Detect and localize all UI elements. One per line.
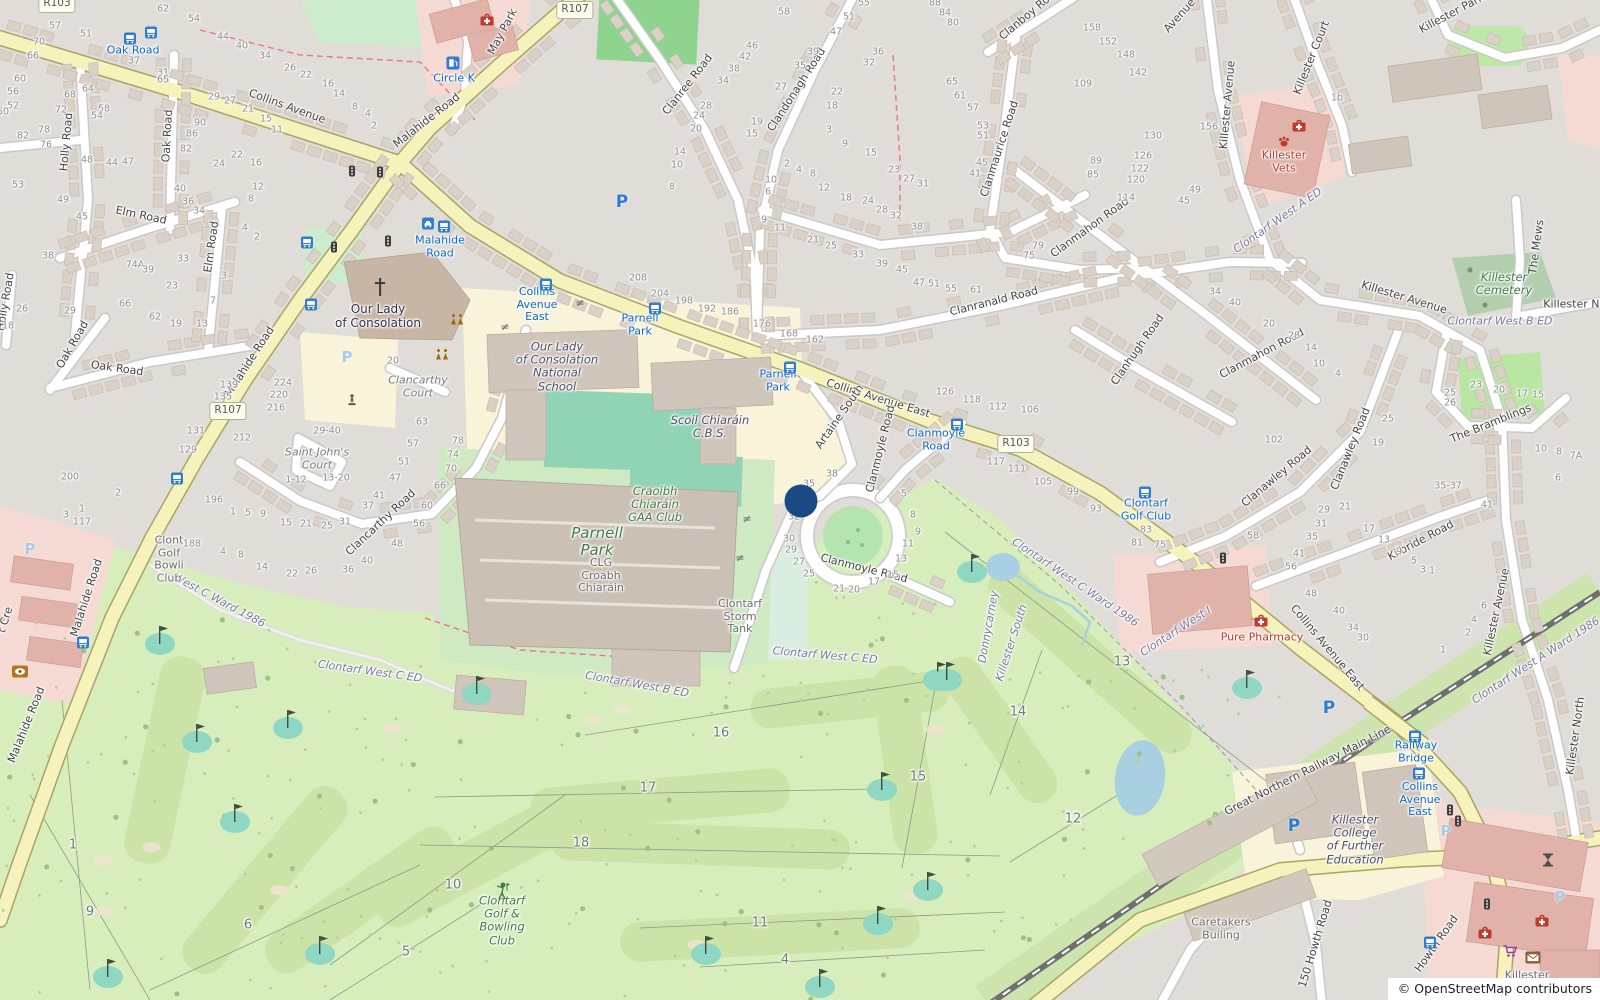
- house-number: 9: [260, 510, 266, 521]
- house-number: 7: [210, 297, 216, 308]
- house-number: 120: [1127, 176, 1145, 187]
- street-label: May Park: [486, 7, 521, 57]
- house-number: 65: [157, 76, 169, 87]
- house-number: 198: [675, 297, 693, 308]
- house-number: 18: [826, 102, 838, 113]
- house-number: 11: [271, 126, 283, 137]
- house-number: 186: [721, 308, 739, 319]
- house-number: 41: [1481, 501, 1493, 512]
- house-number: 10: [671, 161, 683, 172]
- street-label: Collins Avenue East: [1287, 603, 1366, 694]
- house-number: 204: [651, 290, 669, 301]
- house-number: 75: [1154, 541, 1166, 552]
- house-number: 109: [1074, 80, 1092, 91]
- house-number: 55: [858, 0, 870, 9]
- house-number: 5: [901, 490, 907, 501]
- golf-green-icon: [460, 674, 494, 710]
- house-number: 12: [252, 183, 264, 194]
- house-number: 21: [300, 520, 312, 531]
- poi-label: CLG Croabh Chiaráin: [578, 557, 624, 595]
- house-number: 4: [242, 224, 248, 235]
- golf-green-icon: [303, 934, 337, 970]
- house-number: 52: [7, 102, 19, 113]
- house-number: 40: [236, 42, 248, 53]
- street-label: Clanmahon Road: [1218, 326, 1307, 381]
- house-number: 30: [1357, 634, 1369, 645]
- house-number: 47: [389, 474, 401, 485]
- street-label: Malahide Road: [68, 558, 105, 639]
- house-number: 51: [977, 132, 989, 143]
- house-number: 31: [339, 518, 351, 529]
- house-number: 48: [1305, 590, 1317, 601]
- house-number: 25: [1444, 389, 1456, 400]
- house-number: 2: [115, 489, 121, 500]
- house-number: 31: [157, 69, 169, 80]
- house-number: 27: [224, 97, 236, 108]
- signal-icon: [1455, 812, 1461, 831]
- house-number: 34: [193, 207, 205, 218]
- house-number: 28: [1288, 332, 1300, 343]
- house-number: 29: [1318, 506, 1330, 517]
- house-number: 27: [775, 83, 787, 94]
- poi-label: Parnell Park: [571, 525, 622, 560]
- street-label: Artaine South: [813, 383, 867, 452]
- admin-boundary-label: Clontarf West B ED: [1447, 316, 1552, 329]
- location-marker[interactable]: [785, 485, 818, 518]
- street-label: Clanmoyle Road: [864, 404, 898, 494]
- bus-icon: [784, 359, 796, 378]
- house-number: 29: [785, 546, 797, 557]
- house-number: 41: [1293, 550, 1305, 561]
- house-number: 78: [38, 126, 50, 137]
- poi-label: Scoil Chiaráin C.B.S.: [671, 414, 750, 440]
- house-number: 66: [434, 482, 446, 493]
- house-number: 23: [166, 282, 178, 293]
- house-number: 40: [174, 185, 186, 196]
- street-label: Clanmahon Road: [1048, 195, 1131, 260]
- playground-icon: [435, 346, 450, 365]
- house-number: 29-40: [313, 427, 341, 438]
- house-number: 54: [188, 15, 200, 26]
- house-number: 4: [1471, 616, 1477, 627]
- house-number: 51: [80, 30, 92, 41]
- house-number: 56: [1285, 563, 1297, 574]
- house-number: 44: [106, 159, 118, 170]
- house-number: 1-12: [285, 476, 307, 487]
- house-number: 22: [831, 88, 843, 99]
- parking-icon: P: [1288, 816, 1300, 836]
- street-label: Clancarthy Road: [344, 487, 419, 558]
- house-number: 41: [373, 492, 385, 503]
- house-number: 216: [267, 404, 285, 415]
- transit-stop-label: Circle K: [433, 73, 475, 86]
- street-label: Howth Road: [1413, 913, 1461, 975]
- house-number: 13: [196, 320, 208, 331]
- house-number: 5: [245, 509, 251, 520]
- map-canvas[interactable]: Collins AvenueMalahide RoadMay ParkMalah…: [0, 0, 1600, 1000]
- house-number: 49: [57, 196, 69, 207]
- golf-green-icon: [861, 904, 895, 940]
- house-number: 28: [876, 206, 888, 217]
- house-number: 11: [902, 540, 914, 551]
- signal-icon: [377, 163, 383, 182]
- street-label: Collins Avenue East: [825, 377, 932, 421]
- golf-green-icon: [1230, 668, 1264, 704]
- golf-hole-number: 9: [86, 906, 94, 921]
- house-number: 2: [784, 160, 790, 171]
- house-number: 26: [284, 64, 296, 75]
- house-number: 38: [911, 223, 923, 234]
- attribution[interactable]: © OpenStreetMap contributors: [1388, 978, 1600, 1000]
- pharmacy-icon: [1255, 612, 1268, 631]
- golf-green-icon: [271, 708, 305, 744]
- house-number: 46: [746, 42, 758, 53]
- bus-icon: [438, 218, 450, 237]
- house-number: 1: [1440, 646, 1446, 657]
- house-number: 152: [1099, 38, 1117, 49]
- house-number: 66: [119, 300, 131, 311]
- house-number: 15: [280, 519, 292, 530]
- house-number: 20: [848, 586, 860, 597]
- street-label: Oak Road: [160, 109, 175, 162]
- signal-icon: [1484, 895, 1490, 914]
- house-number: 158: [1083, 24, 1101, 35]
- house-number: 112: [989, 403, 1007, 414]
- taxi-icon: [422, 215, 434, 234]
- bus-icon: [1139, 484, 1151, 503]
- house-number: 4: [220, 548, 226, 559]
- house-number: 20: [690, 125, 702, 136]
- poi-label: Craoibh Chiaráin GAA Club: [628, 485, 682, 525]
- house-number: 11: [774, 224, 786, 235]
- house-number: 139: [220, 381, 238, 392]
- golf-green-icon: [180, 722, 214, 758]
- signal-icon: [349, 162, 355, 181]
- golf-hole-number: 13: [1114, 656, 1131, 671]
- house-number: 34: [1347, 624, 1359, 635]
- street-label: Elm Road: [202, 220, 222, 273]
- route-badge: R103: [38, 0, 75, 13]
- street-label: Clanawley Road: [1329, 406, 1374, 492]
- house-number: 74A: [126, 261, 145, 272]
- house-number: 72: [55, 106, 67, 117]
- house-number: 25: [321, 522, 333, 533]
- house-number: 9: [915, 528, 921, 539]
- parking-icon: P: [25, 540, 36, 558]
- house-number: 40: [1229, 299, 1241, 310]
- street-label: Oak Road: [54, 319, 91, 371]
- house-number: 16: [250, 159, 262, 170]
- hourglass-icon: [1543, 852, 1553, 871]
- house-number: 51: [843, 13, 855, 24]
- street-label: Great Northern Railway Main Line: [1223, 723, 1394, 818]
- house-number: 82: [17, 132, 29, 143]
- transit-stop-label: Parnell Park: [621, 312, 658, 337]
- poi-label: Clont Golf Bowli Club: [154, 535, 183, 586]
- house-number: 8: [238, 551, 244, 562]
- house-number: 22: [286, 570, 298, 581]
- house-number: 25: [803, 570, 815, 581]
- golf-green-icon: [91, 957, 125, 993]
- bus-icon: [951, 416, 963, 435]
- house-number: 4: [365, 110, 371, 121]
- golf-green-icon: [911, 870, 945, 906]
- street-label: Killester Court: [1291, 19, 1332, 96]
- bus-icon: [1409, 728, 1421, 747]
- house-number: 220: [270, 391, 288, 402]
- house-number: 6: [1555, 474, 1561, 485]
- church-cross-icon: [372, 278, 388, 300]
- house-number: 4: [1335, 370, 1341, 381]
- admin-boundary-label: Clontarf West C ED: [772, 645, 878, 667]
- house-number: 12: [818, 184, 830, 195]
- house-number: 30: [783, 535, 795, 546]
- house-number: 62: [157, 5, 169, 16]
- house-number: 24: [693, 112, 705, 123]
- house-number: 47: [913, 279, 925, 290]
- bus-icon: [145, 24, 157, 43]
- street-label: Killester Avenue: [1360, 279, 1449, 317]
- house-number: 192: [698, 305, 716, 316]
- house-number: 34: [259, 52, 271, 63]
- bus-icon: [171, 470, 183, 489]
- house-number: 13-20: [322, 474, 350, 485]
- house-number: 126: [1134, 152, 1152, 163]
- house-number: 111: [1008, 465, 1026, 476]
- house-number: 114: [1117, 194, 1135, 205]
- route-badge: R103: [997, 435, 1034, 453]
- house-number: 24: [862, 197, 874, 208]
- house-number: 84: [939, 9, 951, 20]
- house-number: 1: [79, 505, 85, 516]
- house-number: 1b: [1331, 94, 1343, 105]
- house-number: 3: [1420, 566, 1426, 577]
- signal-icon: [1447, 801, 1453, 820]
- house-number: 14: [333, 90, 345, 101]
- house-number: 70: [445, 465, 457, 476]
- street-label: Malahide Road: [223, 325, 278, 400]
- house-number: 188: [183, 540, 201, 551]
- house-number: 14: [1305, 344, 1317, 355]
- golf-hole-number: 5: [402, 946, 410, 961]
- house-number: 64: [82, 85, 94, 96]
- transit-stop-label: Collins Avenue East: [1400, 781, 1441, 819]
- house-number: 105: [1034, 478, 1052, 489]
- admin-boundary-label: Donnycarney: [976, 590, 1001, 664]
- house-number: 26: [16, 305, 28, 316]
- house-number: 66: [27, 52, 39, 63]
- house-number: 10: [1313, 360, 1325, 371]
- house-number: 26: [1444, 399, 1456, 410]
- house-number: 19: [1372, 439, 1384, 450]
- house-number: 22: [231, 151, 243, 162]
- house-number: 37: [362, 502, 374, 513]
- house-number: 53: [977, 122, 989, 133]
- house-number: 13: [1378, 536, 1390, 547]
- house-number: 162: [806, 336, 824, 347]
- house-number: 35: [794, 62, 806, 73]
- house-number: 117: [987, 458, 1005, 469]
- house-number: 32: [890, 212, 902, 223]
- house-number: 83: [1140, 526, 1152, 537]
- golf-green-icon: [930, 660, 964, 696]
- route-badge: R107: [556, 1, 593, 19]
- house-number: 39: [876, 260, 888, 271]
- golf-hole-number: 4: [781, 954, 789, 969]
- house-number: 60: [14, 75, 26, 86]
- playground-icon: [450, 311, 465, 330]
- house-number: 8: [248, 195, 254, 206]
- house-number: 106: [1021, 406, 1039, 417]
- golf-green-icon: [865, 770, 899, 806]
- street-label: Clanmaurice Road: [978, 99, 1021, 198]
- house-number: 21: [833, 585, 845, 596]
- house-number: 60: [421, 502, 433, 513]
- house-number: 33: [852, 251, 864, 262]
- house-number: 48: [81, 156, 93, 167]
- house-number: 13: [895, 555, 907, 566]
- house-number: 32: [863, 59, 875, 70]
- house-number: 8: [810, 170, 816, 181]
- optician-icon: [12, 663, 28, 682]
- house-number: 23: [888, 166, 900, 177]
- poi-label: Killester College of Further Education: [1326, 814, 1383, 867]
- house-number: 25: [825, 242, 837, 253]
- house-number: 45: [76, 213, 88, 224]
- house-number: 99: [1067, 488, 1079, 499]
- house-number: 19: [170, 320, 182, 331]
- house-number: 5: [1411, 557, 1417, 568]
- poi-label: Caretakers Builing: [1191, 916, 1251, 941]
- house-number: 129: [179, 446, 197, 457]
- house-number: 56: [413, 520, 425, 531]
- house-number: 2: [254, 233, 260, 244]
- admin-boundary-label: Clontarf West A ED: [1231, 186, 1324, 257]
- pharmacy-icon: [1479, 924, 1492, 943]
- house-number: 168: [780, 330, 798, 341]
- house-number: 31: [1315, 520, 1327, 531]
- house-number: 61: [970, 286, 982, 297]
- house-number: 57: [407, 440, 419, 451]
- house-number: 3: [63, 511, 69, 522]
- golf-hole-number: 18: [573, 837, 590, 852]
- street-label: Killester North: [1564, 696, 1587, 776]
- house-number: 78: [452, 437, 464, 448]
- house-number: 28: [700, 102, 712, 113]
- gate-icon: ≠: [742, 513, 751, 526]
- house-number: 45: [1178, 197, 1190, 208]
- street-label: Killester Park: [1417, 0, 1486, 36]
- house-number: 22: [300, 71, 312, 82]
- house-number: 45: [976, 159, 988, 170]
- street-label: Holly Road: [58, 112, 76, 172]
- house-number: 20: [1493, 386, 1505, 397]
- golf-green-icon: [921, 660, 955, 696]
- house-number: 57: [49, 22, 61, 33]
- house-number: 208: [629, 274, 647, 285]
- house-number: 142: [1129, 69, 1147, 80]
- house-number: 33: [177, 255, 189, 266]
- poi-label: Our Lady of Consolation: [335, 303, 421, 331]
- house-number: 1: [230, 508, 236, 519]
- golf-green-icon: [143, 624, 177, 660]
- house-number: 16: [322, 80, 334, 91]
- house-number: 3: [221, 272, 227, 283]
- parking-icon: P: [616, 192, 628, 212]
- bus-icon: [540, 276, 552, 295]
- transit-stop-label: Parnell Park: [759, 368, 796, 393]
- poi-label: Killester Vets: [1262, 149, 1306, 174]
- admin-boundary-label: Clontarf West B ED: [584, 670, 690, 701]
- house-number: 126: [936, 388, 954, 399]
- house-number: 70: [33, 38, 45, 49]
- house-number: 14: [674, 148, 686, 159]
- poi-label: Pure Pharmacy: [1221, 632, 1304, 645]
- house-number: 117: [73, 518, 91, 529]
- house-number: 49: [1189, 186, 1201, 197]
- house-number: 15: [1532, 391, 1544, 402]
- house-number: 2: [371, 122, 377, 133]
- gate-icon: ≠: [735, 552, 744, 565]
- street-label: Clanawley Road: [1239, 444, 1314, 510]
- bus-icon: [124, 30, 136, 49]
- house-number: 35: [1306, 533, 1318, 544]
- poi-label: Clontarf Storm Tank: [718, 598, 762, 636]
- golf-hole-number: 16: [713, 727, 730, 742]
- house-number: 15: [865, 149, 877, 160]
- pharmacy-icon: [1293, 117, 1306, 136]
- street-label: Clanree Road: [660, 52, 715, 118]
- street-label: Killester Avenue: [1482, 567, 1513, 657]
- house-number: 39: [807, 48, 819, 59]
- house-number: 8: [352, 103, 358, 114]
- street-label: Clanhugh Road: [1109, 312, 1167, 388]
- house-number: 51: [398, 458, 410, 469]
- house-number: 224: [274, 379, 292, 390]
- route-badge: R107: [209, 402, 246, 420]
- house-number: 29: [208, 93, 220, 104]
- fuel-icon: [447, 55, 460, 74]
- golf-hole-number: 11: [752, 917, 769, 932]
- golf-hole-number: 6: [244, 919, 252, 934]
- bus-icon: [305, 296, 317, 315]
- admin-boundary-label: Killester South: [994, 603, 1031, 683]
- transit-stop-label: Railway Bridge: [1395, 739, 1438, 764]
- house-number: 38: [42, 252, 54, 263]
- house-number: 42: [739, 53, 751, 64]
- house-number: 75: [1023, 252, 1035, 263]
- house-number: 85: [1087, 171, 1099, 182]
- house-number: 3: [826, 126, 832, 137]
- house-number: 48: [391, 540, 403, 551]
- house-number: 63: [416, 418, 428, 429]
- house-number: 37: [128, 57, 140, 68]
- house-number: 31: [917, 180, 929, 191]
- gate-icon: ≠: [500, 321, 509, 334]
- vet-icon: [1278, 133, 1291, 152]
- house-number: 89: [1090, 157, 1102, 168]
- street-label: The Mews: [1527, 219, 1547, 275]
- house-number: 8: [910, 511, 916, 522]
- golf-green-icon: [689, 934, 723, 970]
- golf-hole-number: 15: [910, 771, 927, 786]
- transit-stop-label: Clontarf Golf Club: [1121, 497, 1171, 522]
- street-label: Kilbride Road: [1386, 518, 1456, 563]
- bus-icon: [649, 300, 661, 319]
- house-number: 26: [305, 567, 317, 578]
- poi-label: Clancarthy Court: [388, 374, 448, 399]
- street-label: Clanboy Road: [997, 0, 1063, 43]
